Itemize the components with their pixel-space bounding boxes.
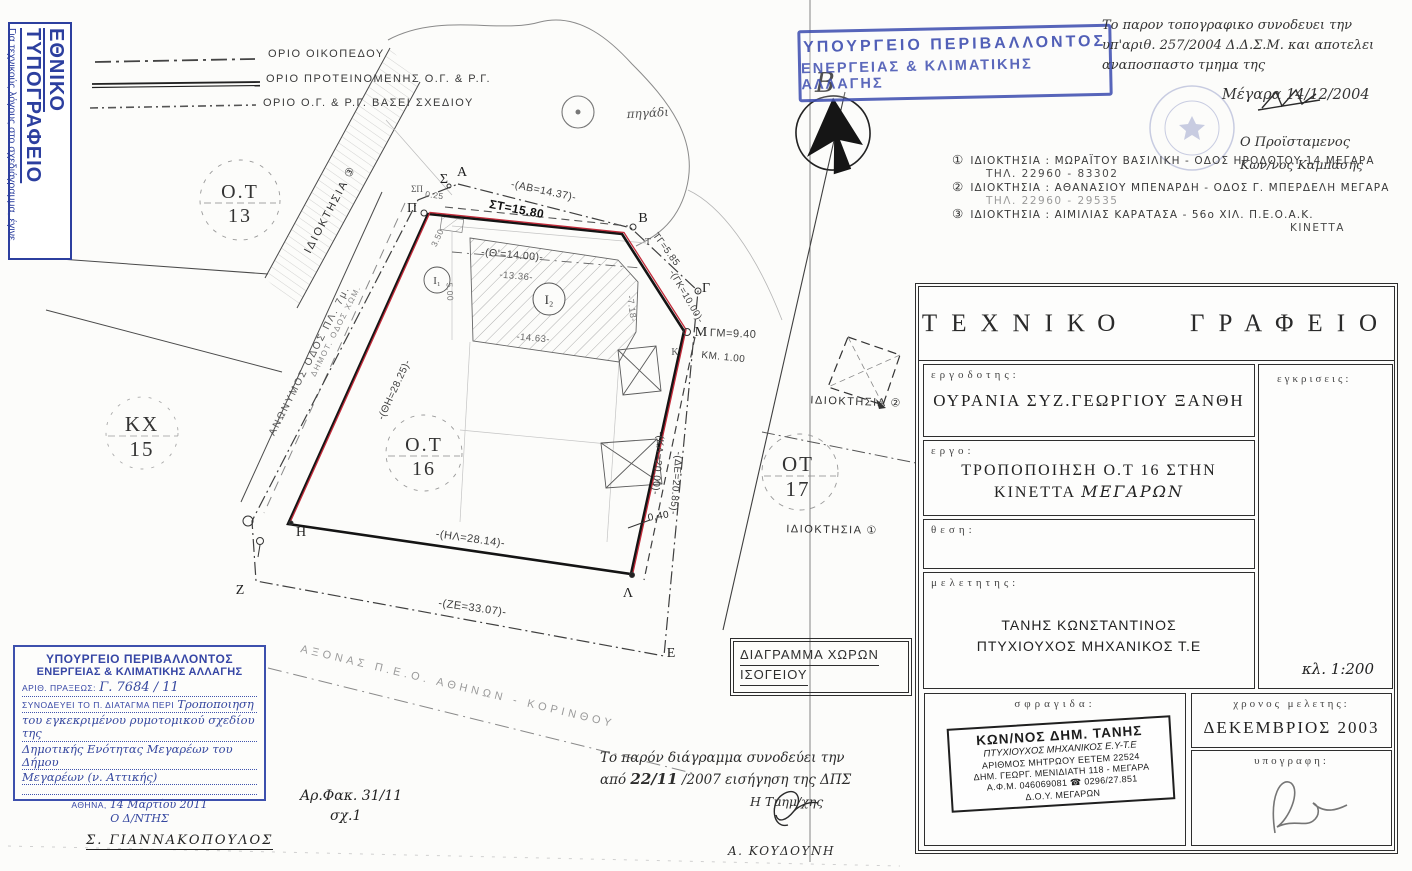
ministry-stamp-bottom: ΥΠΟΥΡΓΕΙΟ ΠΕΡΙΒΑΛΛΟΝΤΟΣ ΕΝΕΡΓΕΙΑΣ & ΚΛΙΜ… bbox=[13, 645, 266, 801]
location-cell: θεση: bbox=[923, 519, 1255, 569]
block-label-ot17: ΟΤ bbox=[782, 452, 814, 476]
note-line: υπ'αριθ. 257/2004 Δ.Δ.Σ.Μ. και αποτελει bbox=[1102, 36, 1404, 56]
study-date-label: χρονος μελετης: bbox=[1192, 698, 1391, 710]
ministry-stamp-top: ΥΠΟΥΡΓΕΙΟ ΠΕΡΙΒΑΛΛΟΝΤΟΣ ΕΝΕΡΓΕΙΑΣ & ΚΛΙΜ… bbox=[797, 24, 1112, 103]
svg-text:Τ: Τ bbox=[645, 237, 651, 248]
measurement-label: 0.25 bbox=[425, 189, 445, 201]
diagram-box-line1: ΔΙΑΓΡΑΜΜΑ ΧΩΡΩΝ bbox=[740, 646, 879, 666]
dotted-blank-line bbox=[22, 785, 257, 795]
block-label-ot16-num: 16 bbox=[412, 458, 436, 480]
project-line1: ΤΡΟΠΟΠΟΙΗΣΗ Ο.Τ 16 ΣΤΗΝ bbox=[924, 461, 1254, 482]
decree-hand-line: του εγκεκριμένου ρυμοτομικού σχεδίου της bbox=[22, 714, 257, 741]
decree-row: ΣΥΝΟΔΕΥΕΙ ΤΟ Π. ΔΙΑΤΑΓΜΑ ΠΕΡΙ Τροποποιησ… bbox=[22, 698, 257, 713]
ownership-text: ΙΔΙΟΚΤΗΣΙΑ : ΑΙΜΙΛΙΑΣ ΚΑΡΑΤΑΣΑ - 56ο ΧΙΛ… bbox=[970, 209, 1313, 221]
i2-label: Ι₂ bbox=[545, 292, 554, 307]
designer-title: ΠΤΥΧΙΟΥΧΟΣ ΜΗΧΑΝΙΚΟΣ Τ.Ε bbox=[924, 636, 1254, 657]
diagram-box-line2: ΙΣΟΓΕΙΟΥ bbox=[740, 666, 808, 686]
right-area-lines bbox=[723, 92, 916, 630]
location-label: θεση: bbox=[931, 524, 976, 536]
ground-floor-diagram-box: ΔΙΑΓΡΑΜΜΑ ΧΩΡΩΝ ΙΣΟΓΕΙΟΥ bbox=[733, 641, 909, 693]
note-line: Το παρόν διάγραμμα συνοδεύει την bbox=[600, 748, 930, 768]
well-center-dot bbox=[576, 110, 581, 115]
reduction-note-box: ΕΘΝΙΚΟ ΤΥΠΟΓΡΑΦΕΙΟ Για τεχνικούς λόγους … bbox=[8, 22, 72, 260]
title-block-header: ΤΕΧΝΙΚΟ ΓΡΑΦΕΙΟ bbox=[919, 287, 1394, 361]
ownership-row: ③ΙΔΙΟΚΤΗΣΙΑ : ΑΙΜΙΛΙΑΣ ΚΑΡΑΤΑΣΑ - 56ο ΧΙ… bbox=[952, 206, 1314, 221]
ministry-stamp-bottom-line2: ΕΝΕΡΓΕΙΑΣ & ΚΛΙΜΑΤΙΚΗΣ ΑΛΛΑΓΗΣ bbox=[22, 666, 257, 678]
stamp-label: σφραγιδα: bbox=[925, 698, 1185, 710]
block-label-kx15-num: 15 bbox=[130, 437, 155, 461]
legend-sample-dashed bbox=[90, 105, 256, 108]
decree-hand-line: Μεγαρέων (ν. Αττικής) bbox=[22, 771, 257, 785]
engineer-stamp: ΚΩΝ/ΝΟΣ ΔΗΜ. ΤΑΝΗΣ ΠΤΥΧΙΟΥΧΟΣ ΜΗΧΑΝΙΚΟΣ … bbox=[947, 715, 1176, 813]
client-label: εργοδοτης: bbox=[931, 369, 1020, 381]
decree-hand-line: Δημοτικής Ενότητας Μεγαρέων του Δήμου bbox=[22, 743, 257, 770]
scale-note: κλ. 1:200 bbox=[1302, 660, 1374, 678]
client-cell: εργοδοτης: ΟΥΡΑΝΙΑ ΣΥΖ.ΓΕΩΡΓΙΟΥ ΞΑΝΘΗ bbox=[923, 364, 1255, 437]
note-line: Το παρον τοπογραφικο συνοδευει την bbox=[1102, 16, 1404, 36]
note-line: από 22/11 /2007 εισήγηση της ΔΠΣ bbox=[600, 768, 930, 791]
well-label: πηγάδι bbox=[625, 105, 669, 121]
project-label: εργο: bbox=[931, 445, 975, 457]
svg-text:Μ: Μ bbox=[695, 325, 708, 340]
designer-label: μελετητης: bbox=[931, 577, 1019, 589]
measurement-label: -(ΓΚ=10.00)- bbox=[667, 268, 706, 325]
legend-sample-solid2 bbox=[92, 86, 260, 88]
title-block: ΤΕΧΝΙΚΟ ΓΡΑΦΕΙΟ εργοδοτης: ΟΥΡΑΝΙΑ ΣΥΖ.Γ… bbox=[918, 286, 1395, 851]
measurement-label: 5.00 bbox=[445, 282, 456, 301]
note-place-date: Μέγαρα 14/12/2004 bbox=[1222, 84, 1404, 106]
svg-text:Η: Η bbox=[296, 525, 306, 540]
block-label-ot13: Ο.Τ bbox=[221, 181, 259, 203]
svg-text:Ζ: Ζ bbox=[236, 583, 245, 598]
handwritten-note-top-right: Το παρον τοπογραφικο συνοδευει την υπ'αρ… bbox=[1102, 16, 1404, 174]
stamp-city-date: ΑΘΗΝΑ, 14 Μαρτίου 2011 bbox=[22, 798, 257, 811]
small-hatched-box bbox=[440, 217, 464, 233]
measurement-label: ΣΤ=15.80 bbox=[488, 197, 545, 221]
ownership-number: ② bbox=[952, 179, 964, 194]
ministry-stamp-bottom-line1: ΥΠΟΥΡΓΕΙΟ ΠΕΡΙΒΑΛΛΟΝΤΟΣ bbox=[22, 652, 257, 666]
office-title: ΤΕΧΝΙΚΟ ΓΡΑΦΕΙΟ bbox=[922, 310, 1391, 338]
ownership-location: ΚΙΝΕΤΤΑ bbox=[1290, 222, 1345, 234]
svg-text:Σ: Σ bbox=[440, 172, 448, 187]
note-role: Η Τμημ/χης bbox=[750, 793, 930, 812]
file-reference: Αρ.Φακ. 31/11 σχ.1 bbox=[300, 788, 402, 824]
legend-sample-solid bbox=[92, 82, 260, 84]
ownership-text: ΙΔΙΟΚΤΗΣΙΑ : ΜΩΡΑΪΤΟΥ ΒΑΣΙΛΙΚΗ - ΟΔΟΣ ΗΡ… bbox=[970, 155, 1374, 167]
measurement-label: ΤΓ=5.85 bbox=[650, 231, 682, 269]
ownership-number: ① bbox=[952, 152, 964, 167]
study-date-cell: χρονος μελετης: ΔΕΚΕΜΒΡΙΟΣ 2003 bbox=[1191, 693, 1392, 748]
measurement-labels: -(ΑΒ=14.37)- ΣΤ=15.80 -(Θ'=14.00)- -13.3… bbox=[376, 178, 757, 618]
reduction-percent: 42% bbox=[0, 152, 3, 202]
measurement-label: ΚΜ. 1.00 bbox=[701, 350, 746, 366]
svg-text:Α: Α bbox=[457, 165, 468, 180]
study-date-value: ΔΕΚΕΜΒΡΙΟΣ 2003 bbox=[1192, 718, 1391, 738]
signature-label: υπογραφη: bbox=[1192, 755, 1391, 767]
ministry-stamp-top-line2: ΕΝΕΡΓΕΙΑΣ & ΚΛΙΜΑΤΙΚΗΣ ΑΛΛΑΓΗΣ bbox=[801, 55, 1110, 93]
measurement-label: -(ΚΛ=20.00)- bbox=[649, 431, 665, 495]
svg-text:Λ: Λ bbox=[623, 586, 634, 601]
north-arrow bbox=[791, 91, 875, 179]
svg-text:Β: Β bbox=[638, 211, 647, 226]
signed-name-bottom-left: Σ. ΓΙΑΝΝΑΚΟΠΟΥΛΟΣ bbox=[86, 833, 273, 850]
legend-label-proposed-line: ΟΡΙΟ ΠΡΟΤΕΙΝΟΜΕΝΗΣ Ο.Γ. & Ρ.Γ. bbox=[266, 73, 491, 85]
block-label-kx15: ΚΧ bbox=[125, 412, 159, 436]
legend-label-plot-boundary: ΟΡΙΟ ΟΙΚΟΠΕΔΟΥ bbox=[268, 48, 385, 60]
stamp-cell: σφραγιδα: ΚΩΝ/ΝΟΣ ΔΗΜ. ΤΑΝΗΣ ΠΤΥΧΙΟΥΧΟΣ … bbox=[924, 693, 1186, 846]
measurement-label: ΓΜ=9.40 bbox=[710, 327, 757, 341]
ownership-number: ③ bbox=[952, 206, 964, 221]
block-label-ot13-num: 13 bbox=[228, 205, 252, 227]
act-number-row: ΑΡΙΘ. ΠΡΑΞΕΩΣ: Γ. 7684 / 11 bbox=[22, 681, 257, 697]
i1-label: Ι₁ bbox=[433, 275, 441, 287]
project-line2: ΚΙΝΕΤΤΑ ΜΕΓΑΡΩΝ bbox=[924, 482, 1254, 504]
street-name-label: ΑΝΩΝΥΜΟΣ ΟΔΟΣ ΠΛ. 7μ. bbox=[267, 284, 352, 437]
ownership-tag-2: ΙΔΙΟΚΤΗΣΙΑ ② bbox=[810, 394, 902, 409]
sheet-number: σχ.1 bbox=[330, 808, 402, 824]
ownership-tag-1: ΙΔΙΟΚΤΗΣΙΑ ① bbox=[786, 523, 878, 537]
note-signer-name: Α. ΚΟΥΔΟΥΝΗ bbox=[728, 842, 930, 860]
scanned-topographic-sheet: πηγάδι Ι₁ Ι₂ bbox=[0, 0, 1412, 871]
reduction-note: Για τεχνικούς λόγους στο σχεδιάγραμμα, έ… bbox=[0, 28, 18, 241]
approvals-cell: εγκρισεις: κλ. 1:200 bbox=[1258, 364, 1393, 689]
block-label-ot16: Ο.Τ bbox=[405, 434, 443, 456]
measurement-label: 0,40 bbox=[647, 509, 670, 524]
svg-text:Ε: Ε bbox=[667, 646, 676, 661]
measurement-label: 3.50 bbox=[429, 227, 446, 248]
project-cell: εργο: ΤΡΟΠΟΠΟΙΗΣΗ Ο.Τ 16 ΣΤΗΝ ΚΙΝΕΤΤΑ ΜΕ… bbox=[923, 440, 1255, 516]
note-role: Ο Προϊσταμενος bbox=[1240, 133, 1404, 153]
svg-text:Π: Π bbox=[407, 201, 417, 216]
legend-sample-dashdot bbox=[95, 59, 255, 62]
svg-text:Κ: Κ bbox=[671, 347, 679, 358]
ownership-text: ΙΔΙΟΚΤΗΣΙΑ : ΑΘΑΝΑΣΙΟΥ ΜΠΕΝΑΡΔΗ - ΟΔΟΣ Γ… bbox=[970, 182, 1389, 194]
svg-text:ΣΠ: ΣΠ bbox=[411, 184, 423, 194]
handwritten-note-bottom: Το παρόν διάγραμμα συνοδεύει την από 22/… bbox=[600, 748, 930, 860]
ministry-stamp-top-line1: ΥΠΟΥΡΓΕΙΟ ΠΕΡΙΒΑΛΛΟΝΤΟΣ bbox=[803, 33, 1106, 57]
file-number: Αρ.Φακ. 31/11 bbox=[300, 788, 402, 804]
client-name: ΟΥΡΑΝΙΑ ΣΥΖ.ΓΕΩΡΓΙΟΥ ΞΑΝΘΗ bbox=[924, 391, 1254, 411]
peo-axis-label: ΑΞΟΝΑΣ Π.Ε.Ο. ΑΘΗΝΩΝ - ΚΟΡΙΝΘΟΥ bbox=[299, 643, 616, 730]
designer-cell: μελετητης: ΤΑΝΗΣ ΚΩΝΣΤΑΝΤΙΝΟΣ ΠΤΥΧΙΟΥΧΟΣ… bbox=[923, 572, 1255, 689]
measurement-label: -(ΔΕ=20.85)- bbox=[667, 451, 683, 515]
legend-label-plan-line: ΟΡΙΟ Ο.Γ. & Ρ.Γ. ΒΑΣΕΙ ΣΧΕΔΙΟΥ bbox=[263, 97, 474, 109]
signature-cell: υπογραφη: bbox=[1191, 750, 1392, 846]
approvals-label: εγκρισεις: bbox=[1277, 373, 1351, 385]
ownership-row: ②ΙΔΙΟΚΤΗΣΙΑ : ΑΘΑΝΑΣΙΟΥ ΜΠΕΝΑΡΔΗ - ΟΔΟΣ … bbox=[952, 179, 1390, 194]
ownership-row: ①ΙΔΙΟΚΤΗΣΙΑ : ΜΩΡΑΪΤΟΥ ΒΑΣΙΛΙΚΗ - ΟΔΟΣ Η… bbox=[952, 152, 1375, 167]
legend-samples bbox=[90, 59, 260, 108]
designer-name: ΤΑΝΗΣ ΚΩΝΣΤΑΝΤΙΝΟΣ bbox=[924, 615, 1254, 636]
note-line: αναποσπαστο τμημα της bbox=[1102, 56, 1404, 76]
reduction-title: ΕΘΝΙΚΟ ΤΥΠΟΓΡΑΦΕΙΟ bbox=[21, 28, 67, 254]
director-line: Ο Δ/ΝΤΗΣ bbox=[22, 812, 257, 825]
act-number-value: Γ. 7684 / 11 bbox=[99, 680, 179, 695]
block-label-ot17-num: 17 bbox=[786, 477, 811, 501]
measurement-label: -(ΖΕ=33.07)- bbox=[438, 597, 508, 618]
measurement-label: -(ΘΗ=28.25)- bbox=[376, 358, 414, 422]
decree-subject: Τροποποιηση bbox=[177, 697, 253, 711]
svg-text:Γ: Γ bbox=[702, 281, 710, 296]
